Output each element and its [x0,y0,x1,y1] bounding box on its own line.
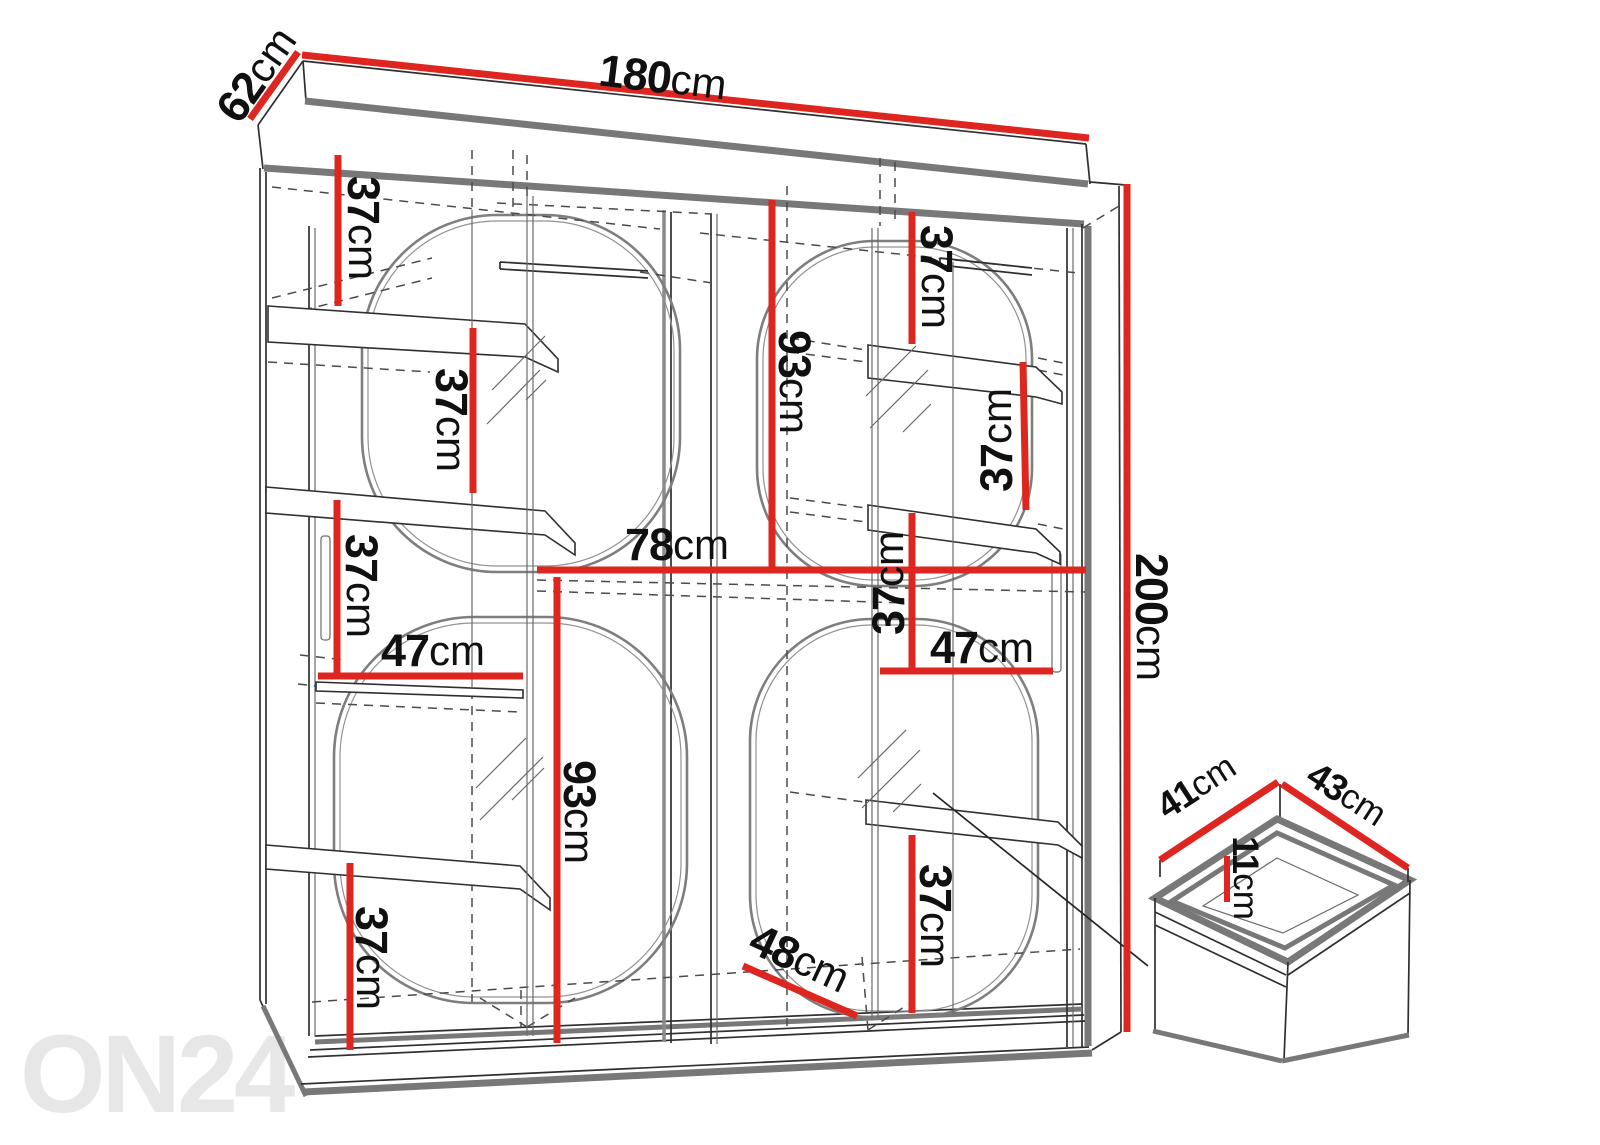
dim-line-right-door-gap [1023,362,1026,510]
drawer-front-seam [1155,925,1286,987]
hidden-line [640,272,712,283]
left-door-handle [321,536,330,640]
mirror-hatch-icon [476,738,526,788]
dim-label-left-top-gap: 37cm [339,176,390,280]
dim-label-left-mid-gap: 37cm [337,534,388,638]
mirror-hatch-icon [903,404,931,432]
dim-label-right-hang-height: 93cm [770,330,821,434]
watermark-logo: ON24 [20,1013,295,1136]
top-shade-upper [305,101,1088,184]
floor-shade [303,1053,1092,1092]
dim-label-right-mid-gap: 37cm [863,531,914,635]
top-right-edge [1086,144,1090,184]
hidden-line [1038,358,1068,364]
drawer-bottom-edge [1153,1031,1282,1061]
right-bottom-edge [1092,1032,1121,1050]
dim-label-left-bottom-gap: 37cm [347,906,398,1010]
hidden-bottom-edge [312,949,1080,1002]
mirror-hatch-icon [487,370,540,424]
hidden-line [497,203,712,214]
drawer-rim-inner [1172,833,1394,948]
shelf [268,306,558,372]
top-right-connector [1090,182,1126,185]
mirror-hatch-icon [862,750,920,808]
hidden-line [1038,524,1068,530]
top-corner-edge [303,61,306,101]
dim-label-left-hang-height: 93cm [555,760,606,864]
drawer-right-edge [1408,880,1410,1034]
drawer-front-corner [1284,962,1288,1060]
dim-label-right-top-gap: 37cm [912,225,963,329]
dim-label-right-door-gap: 37cm [971,388,1022,492]
dim-label-width: 180cm [596,44,729,110]
hidden-line [316,703,520,712]
dim-label-left-shelf-gap: 37cm [427,368,478,472]
dim-label-inner-width: 78cm [625,519,729,570]
right-back-edge [1119,186,1121,1032]
top-front-left-edge [258,125,263,169]
dim-label-left-shelf-width: 47cm [381,625,485,676]
drawer-pointer-line [933,793,1148,966]
hidden-line [790,498,866,508]
hidden-line [1083,206,1119,228]
hidden-line [537,580,1085,592]
hidden-line [268,362,430,372]
door-bottom-shade [315,1009,1082,1042]
dim-label-right-bottom-gap: 37cm [911,864,962,968]
hidden-line [537,591,905,603]
shelf [866,800,1082,858]
dim-label-right-shelf-width: 47cm [930,622,1034,673]
dim-label-drawer-width: 43cm [1300,753,1394,834]
hidden-line [790,792,864,802]
shelf [266,487,575,555]
mirror-hatches [476,336,931,820]
dim-label-drawer-height: 11cm [1226,836,1267,920]
dim-label-depth: 62cm [205,17,306,131]
hidden-line [790,512,866,522]
drawer-bottom-edge [1282,1035,1409,1061]
dim-label-height: 200cm [1127,553,1178,681]
mirror-hatch-icon [526,380,546,400]
diagram-canvas: ON24 [0,0,1600,1145]
wardrobe-dimension-diagram: ON24 [0,0,1600,1145]
